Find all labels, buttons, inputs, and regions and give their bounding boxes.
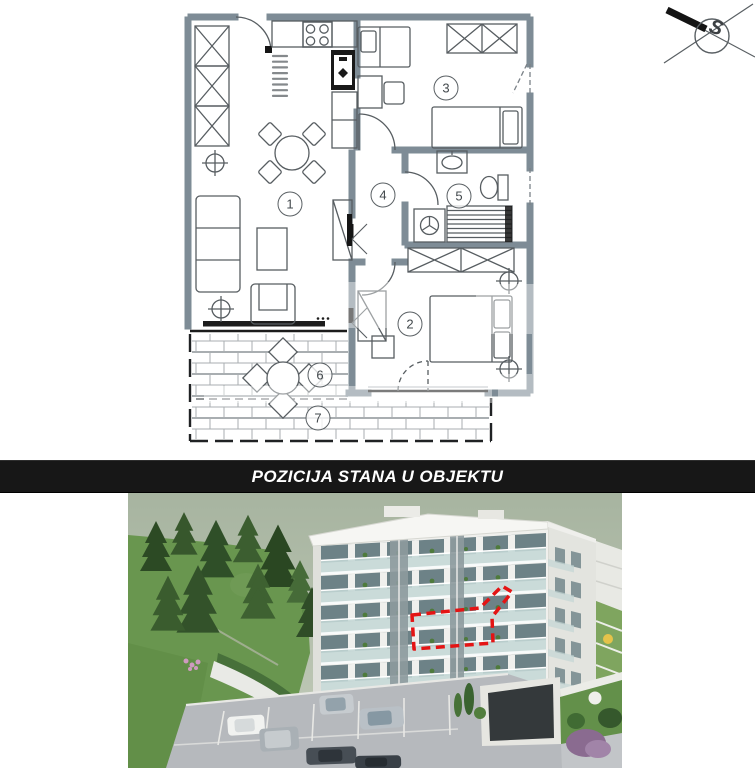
dining-table bbox=[258, 122, 326, 184]
entry-door-leaf bbox=[265, 46, 272, 53]
building-render bbox=[128, 493, 622, 768]
bedroom3-furniture bbox=[358, 24, 522, 150]
coffee-table bbox=[257, 228, 287, 270]
listing-graphic: S 1 2 3 4 5 6 7 POZICIJA STANA U OBJEKTU bbox=[0, 0, 755, 768]
position-banner-title: POZICIJA STANA U OBJEKTU bbox=[252, 467, 504, 487]
position-banner: POZICIJA STANA U OBJEKTU bbox=[0, 460, 755, 493]
compass: S bbox=[664, 4, 755, 63]
tv-dots bbox=[317, 317, 330, 320]
bathroom-fixtures bbox=[405, 151, 512, 242]
sofa bbox=[196, 196, 240, 292]
armchair bbox=[251, 284, 295, 324]
floor-plan: S bbox=[0, 0, 755, 464]
building-right-face bbox=[548, 521, 596, 703]
radiator bbox=[273, 56, 287, 96]
entry-wardrobe bbox=[195, 26, 229, 146]
